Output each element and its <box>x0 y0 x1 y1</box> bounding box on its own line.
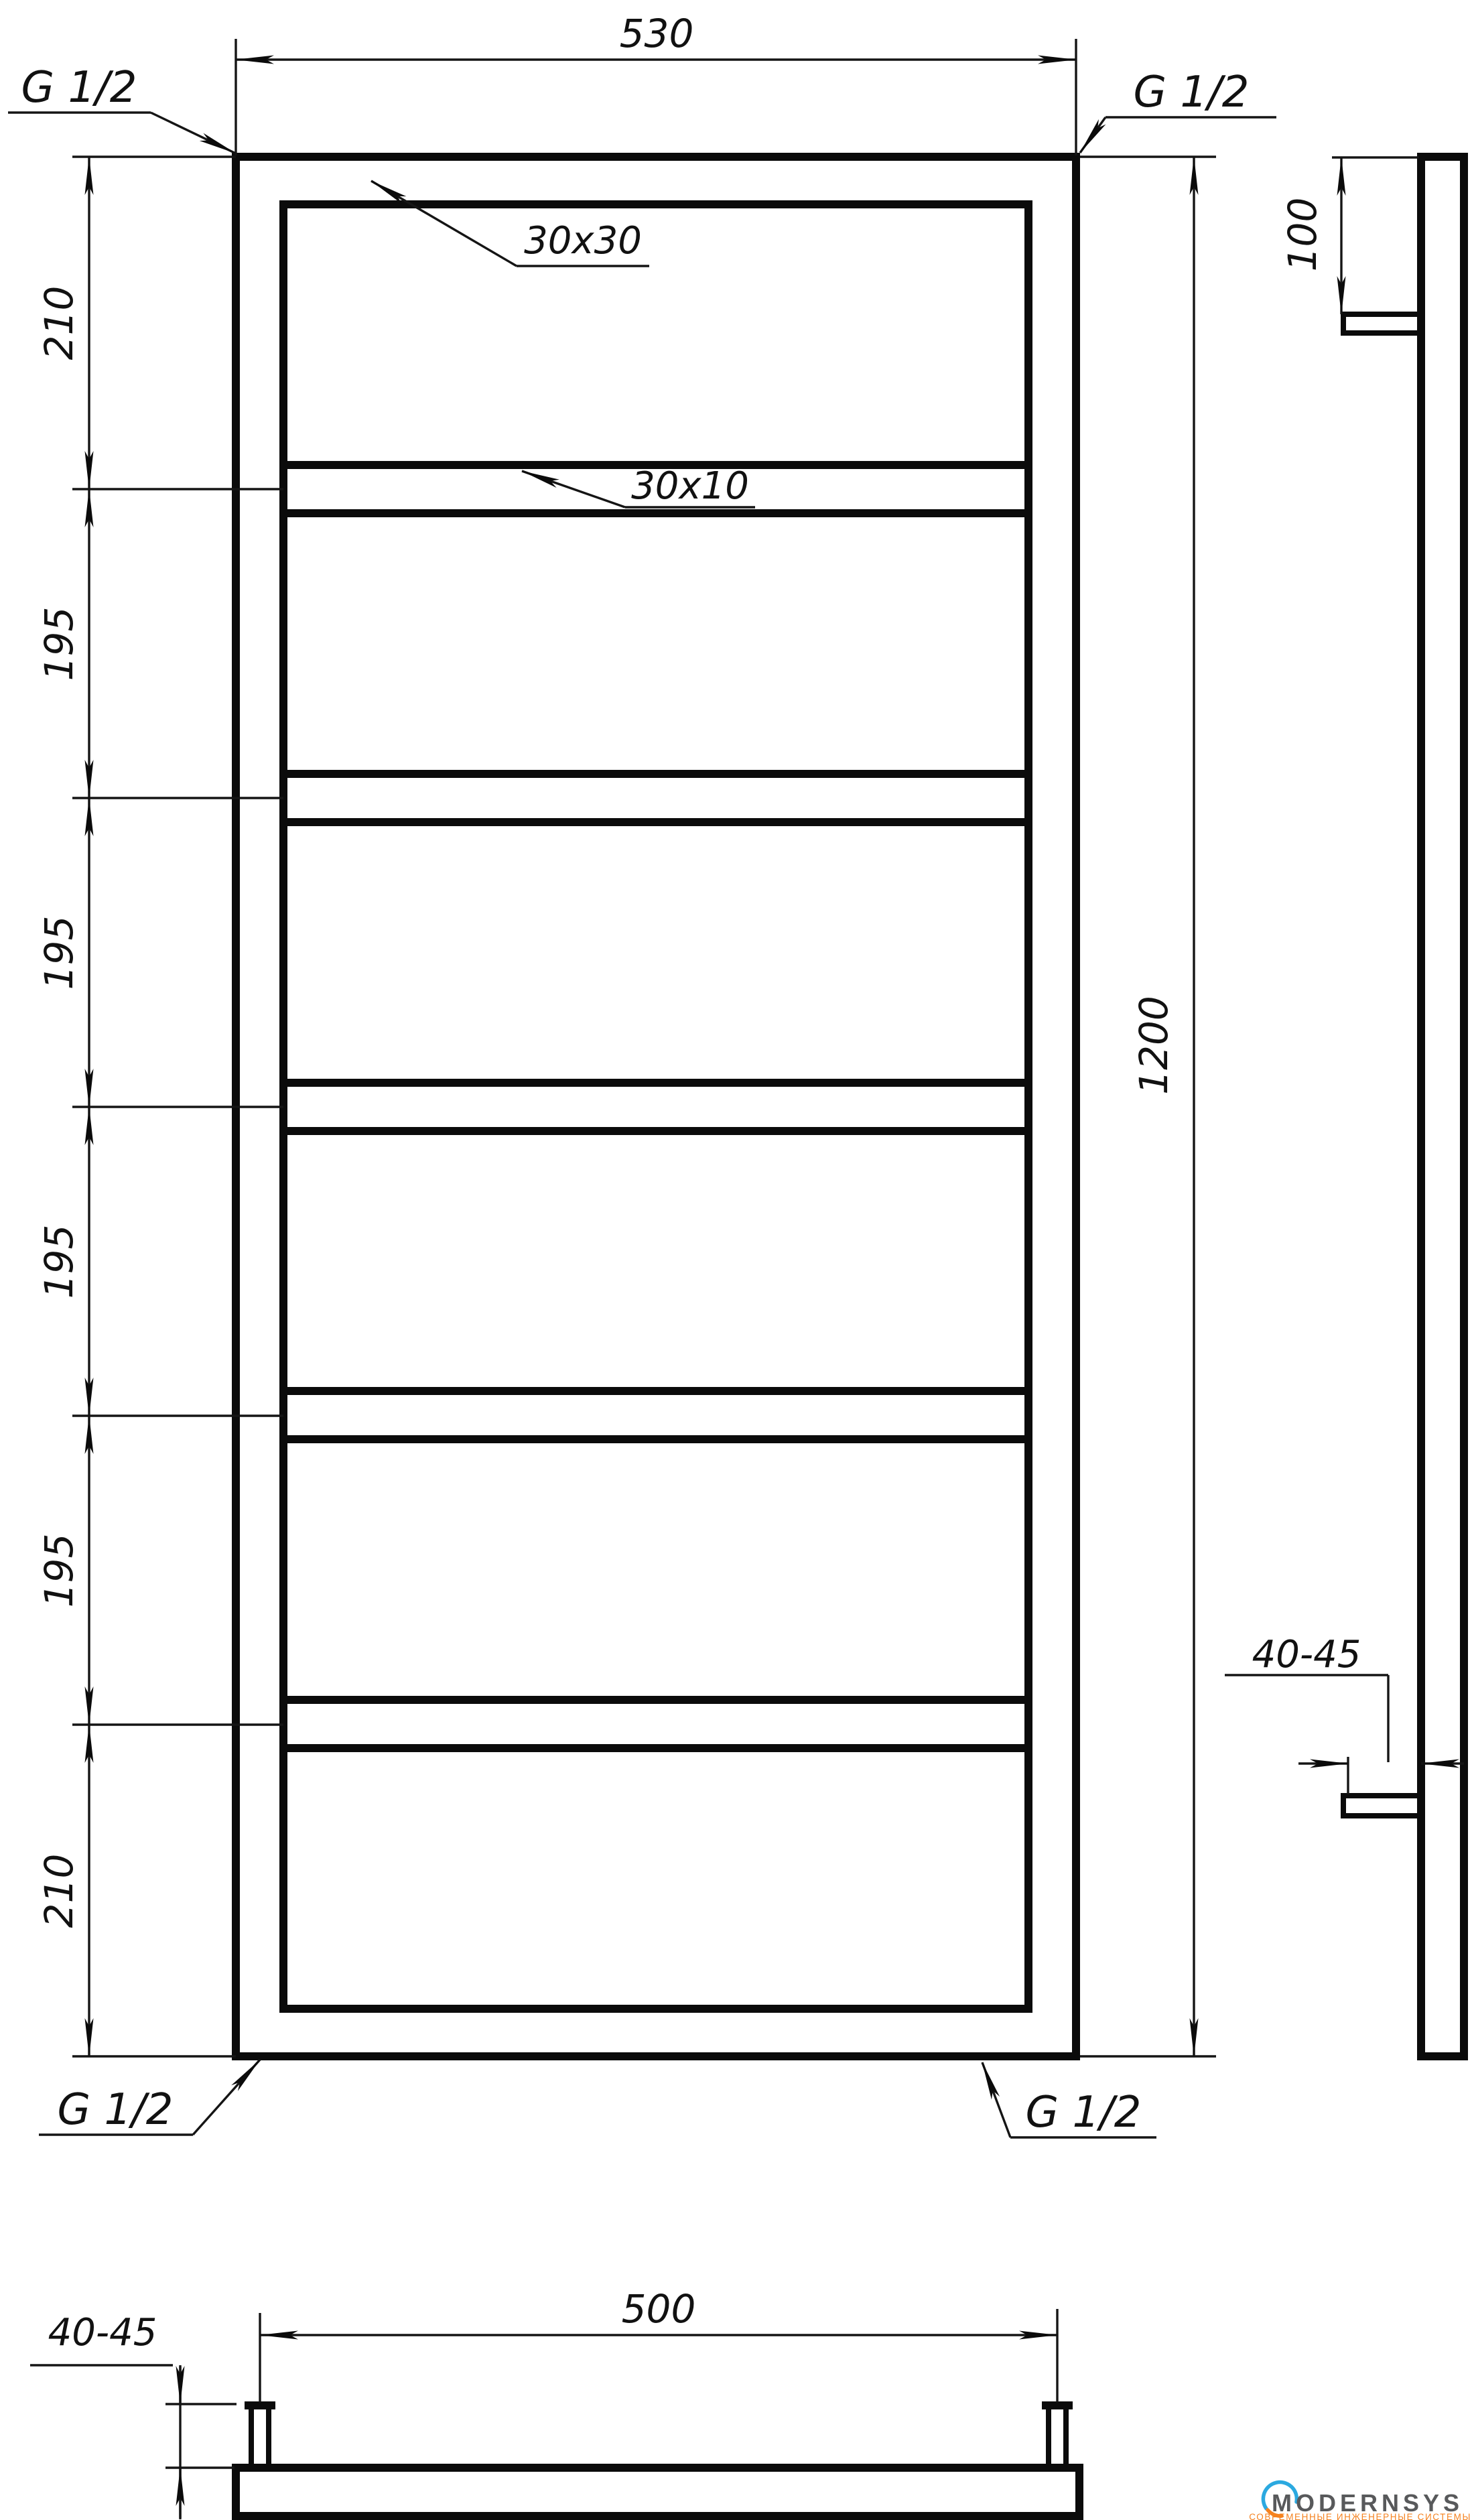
thread-label: G 1/2 <box>58 2085 174 2135</box>
side-view: 100 40-45 <box>1225 157 1464 2056</box>
dim-chain-value-5: 195 <box>36 1534 82 1608</box>
dim-spacing-value: 500 <box>622 2286 696 2332</box>
dim-offset-value: 100 <box>1280 198 1325 272</box>
dim-width-value: 530 <box>620 11 694 56</box>
towel-rail-technical-drawing: 530 210 195 195 195 195 210 1200 G 1/2 <box>0 0 1472 2520</box>
profile-callout-rung: 30x10 <box>522 464 755 508</box>
profile-frame-label: 30x30 <box>524 219 642 263</box>
rung-4 <box>283 1391 1028 1439</box>
dim-chain-value-6: 210 <box>36 1854 82 1928</box>
leader-arrow <box>151 113 236 153</box>
thread-label: G 1/2 <box>1134 68 1250 117</box>
wall-bracket-top <box>1343 314 1421 333</box>
dim-chain-value-3: 195 <box>36 916 82 990</box>
dim-bracket-offset-side: 40-45 <box>1225 1633 1464 1794</box>
dim-height-value: 1200 <box>1131 996 1177 1095</box>
dim-bracket-offset-value: 40-45 <box>1252 1633 1361 1676</box>
frame-outer-outline <box>236 157 1076 2056</box>
wall-bracket-bottom <box>1343 1796 1421 1816</box>
thread-callout-top-left: G 1/2 <box>8 63 236 153</box>
logo-tagline: СОВРЕМЕННЫЕ ИНЖЕНЕРНЫЕ СИСТЕМЫ <box>1249 2512 1471 2520</box>
profile-rung-label: 30x10 <box>631 464 749 508</box>
leader-arrow <box>1080 117 1106 153</box>
leader-arrow <box>193 2060 260 2135</box>
thread-callout-bottom-right: G 1/2 <box>982 2062 1156 2137</box>
front-view <box>236 157 1076 2056</box>
leader-arrow <box>982 2062 1010 2137</box>
brand-logo: MODERNSYS СОВРЕМЕННЫЕ ИНЖЕНЕРНЫЕ СИСТЕМЫ <box>1249 2482 1471 2520</box>
thread-callout-bottom-left: G 1/2 <box>39 2060 260 2135</box>
dim-chain-value-4: 195 <box>36 1225 82 1299</box>
dim-top-offset-100: 100 <box>1280 157 1419 314</box>
dim-bracket-spacing-500: 500 <box>260 2286 1057 2402</box>
dim-bracket-offset-value: 40-45 <box>48 2311 157 2355</box>
thread-label: G 1/2 <box>1026 2088 1142 2137</box>
profile-callout-frame: 30x30 <box>371 181 649 266</box>
bottom-view: 500 40-45 <box>30 2286 1079 2519</box>
leader-arrow <box>522 471 625 507</box>
dim-width-530: 530 <box>236 11 1076 155</box>
bracket-stud-right <box>1049 2405 1066 2468</box>
dim-left-chain: 210 195 195 195 195 210 <box>36 157 283 2056</box>
thread-callout-top-right: G 1/2 <box>1080 68 1276 153</box>
rung-3 <box>283 1083 1028 1131</box>
dim-chain-value-1: 210 <box>36 286 82 360</box>
dim-height-1200: 1200 <box>1080 157 1216 2056</box>
bottom-plate-outline <box>236 2468 1079 2516</box>
side-tube-outline <box>1421 157 1464 2056</box>
thread-label: G 1/2 <box>21 63 137 113</box>
bracket-stud-left <box>251 2405 269 2468</box>
rung-2 <box>283 774 1028 822</box>
rung-5 <box>283 1700 1028 1748</box>
dim-bracket-offset-bottom: 40-45 <box>30 2311 237 2519</box>
dim-chain-value-2: 195 <box>36 607 82 681</box>
leader-arrow <box>371 181 517 266</box>
